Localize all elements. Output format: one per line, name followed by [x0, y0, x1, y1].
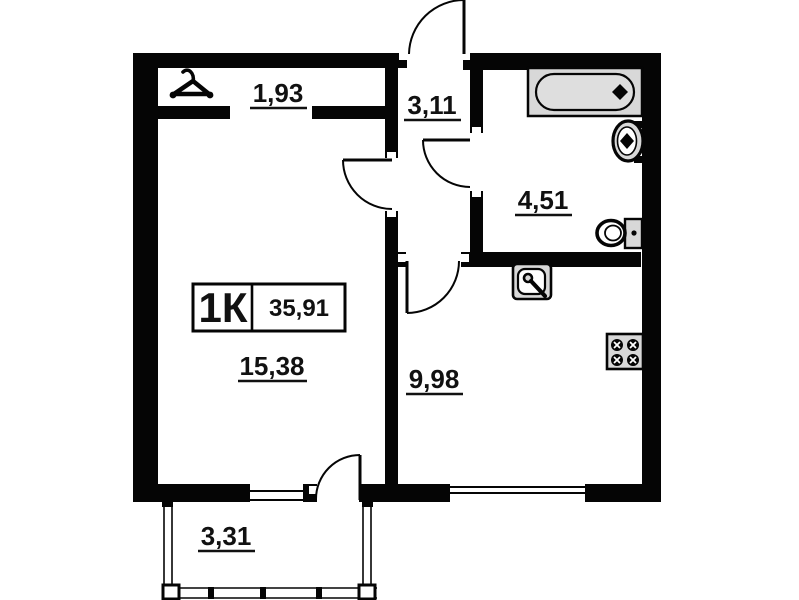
kitchen-window [450, 487, 585, 493]
living-room-window [250, 491, 303, 500]
washbasin-icon [613, 121, 643, 163]
living-room-door [343, 152, 396, 217]
living-room-area-label: 15,38 [239, 351, 304, 381]
hallway-area-label: 3,11 [407, 90, 456, 120]
railing-post [163, 585, 179, 599]
closet-area-label: 1,93 [253, 78, 304, 108]
door-jamb [472, 191, 481, 197]
floor-plan: 1К 35,91 1,93 3,11 4,51 15,38 9,98 3,31 [0, 0, 799, 600]
stove-icon [607, 334, 643, 369]
bathroom-door [423, 127, 481, 197]
kitchen-door [398, 254, 469, 313]
bathtub-icon [528, 68, 642, 116]
door-swing-arc [343, 160, 392, 209]
railing-nub [362, 502, 373, 507]
door-jamb [398, 254, 406, 262]
wall-closet-bottom-right [312, 106, 388, 119]
wall-bottom-mid [359, 484, 450, 502]
wall-right [642, 53, 661, 502]
railing-tick [316, 587, 322, 599]
apartment-type-label: 1К [199, 284, 248, 331]
door-jamb [461, 254, 469, 262]
interior-walls [155, 60, 641, 485]
railing-nub [162, 502, 173, 507]
kitchen-sink-icon [513, 264, 551, 299]
wall-hall-divider-upper [385, 60, 398, 158]
kitchen-area-label: 9,98 [409, 364, 460, 394]
wall-left [133, 53, 158, 502]
wall-bathroom-left-upper [470, 60, 483, 133]
wall-closet-bottom-left [155, 106, 230, 119]
balcony-area-label: 3,31 [201, 521, 252, 551]
railing-tick [260, 587, 266, 599]
door-jamb [472, 127, 481, 133]
balcony-door [309, 455, 360, 500]
wall-bottom-kitchen-right [585, 484, 661, 502]
door-swing-arc [409, 0, 464, 54]
apartment-badge: 1К 35,91 [193, 284, 345, 331]
door-jamb [463, 53, 470, 60]
railing-post [359, 585, 375, 599]
door-jamb [387, 152, 396, 158]
railing-tick [208, 587, 214, 599]
total-area-label: 35,91 [269, 295, 329, 322]
floor-plan-drawing: 1К 35,91 1,93 3,11 4,51 15,38 9,98 3,31 [0, 0, 799, 600]
hanger-icon [170, 70, 214, 98]
wall-bottom-living [133, 484, 250, 502]
door-swing-arc [407, 261, 459, 313]
toilet-icon [597, 219, 642, 248]
door-jamb [387, 211, 396, 217]
door-swing-arc [423, 140, 470, 187]
wall-top-left [133, 53, 407, 68]
balcony-railing [162, 502, 377, 599]
entrance-door [399, 0, 470, 60]
bathroom-area-label: 4,51 [518, 185, 569, 215]
door-swing-arc [316, 455, 360, 499]
door-jamb [399, 53, 407, 60]
